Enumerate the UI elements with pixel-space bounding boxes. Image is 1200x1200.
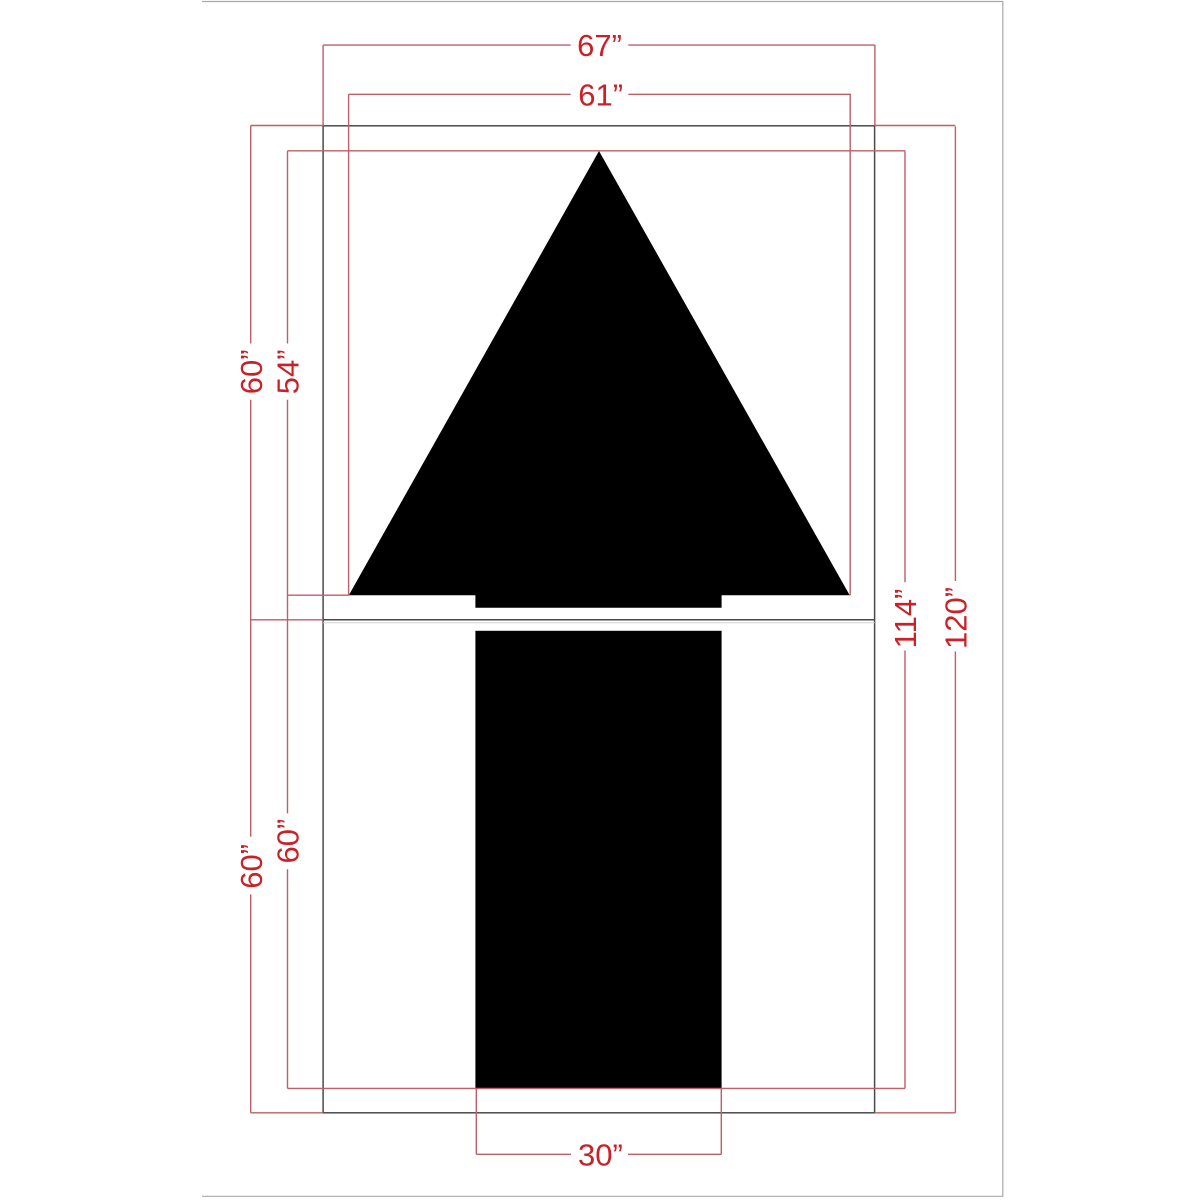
svg-text:67”: 67” (577, 28, 622, 63)
svg-text:120”: 120” (938, 587, 973, 649)
svg-text:60”: 60” (234, 349, 269, 394)
svg-text:61”: 61” (578, 77, 623, 112)
svg-text:60”: 60” (271, 819, 306, 864)
svg-text:60”: 60” (234, 844, 269, 889)
svg-text:114”: 114” (888, 589, 923, 649)
svg-text:54”: 54” (270, 349, 305, 394)
svg-text:30”: 30” (578, 1137, 623, 1172)
